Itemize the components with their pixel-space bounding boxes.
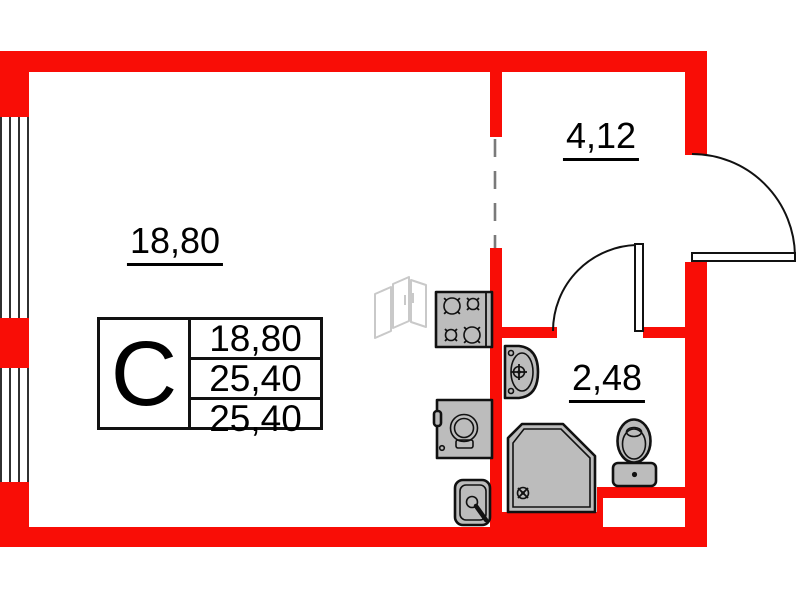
entrance-door-arc	[692, 154, 795, 261]
table-row: 25,40	[191, 357, 320, 397]
plan-drawing	[0, 0, 800, 600]
bathroom-door-leaf	[635, 244, 643, 331]
bathroom-sink-icon	[505, 346, 538, 398]
table-row: 18,80	[191, 320, 320, 357]
area-label-bathroom: 2,48	[569, 360, 645, 403]
kitchen-sink-icon	[455, 480, 490, 525]
entrance-door-leaf	[692, 253, 795, 261]
window-upper	[1, 117, 28, 318]
unit-type-cell: С	[100, 320, 191, 427]
unit-values-column: 18,80 25,40 25,40	[191, 320, 320, 427]
radiator-icon	[375, 277, 426, 338]
bathroom-area: 2,48	[572, 357, 642, 398]
table-row: 25,40	[191, 397, 320, 437]
floor-plan: 18,80 4,12 2,48 С 18,80 25,40 25,40	[0, 0, 800, 600]
shower-icon	[508, 424, 595, 512]
toilet-icon	[613, 420, 656, 487]
window-symbol	[1, 117, 28, 482]
bathroom-door-arc	[553, 244, 643, 331]
window-lower	[1, 368, 28, 482]
hallway-area: 4,12	[566, 115, 636, 156]
stove-icon	[436, 292, 492, 347]
area-label-main-room: 18,80	[127, 223, 223, 266]
unit-info-table: С 18,80 25,40 25,40	[97, 317, 323, 430]
washing-machine-icon	[434, 400, 492, 458]
area-label-hallway: 4,12	[563, 118, 639, 161]
main-room-area: 18,80	[130, 220, 220, 261]
